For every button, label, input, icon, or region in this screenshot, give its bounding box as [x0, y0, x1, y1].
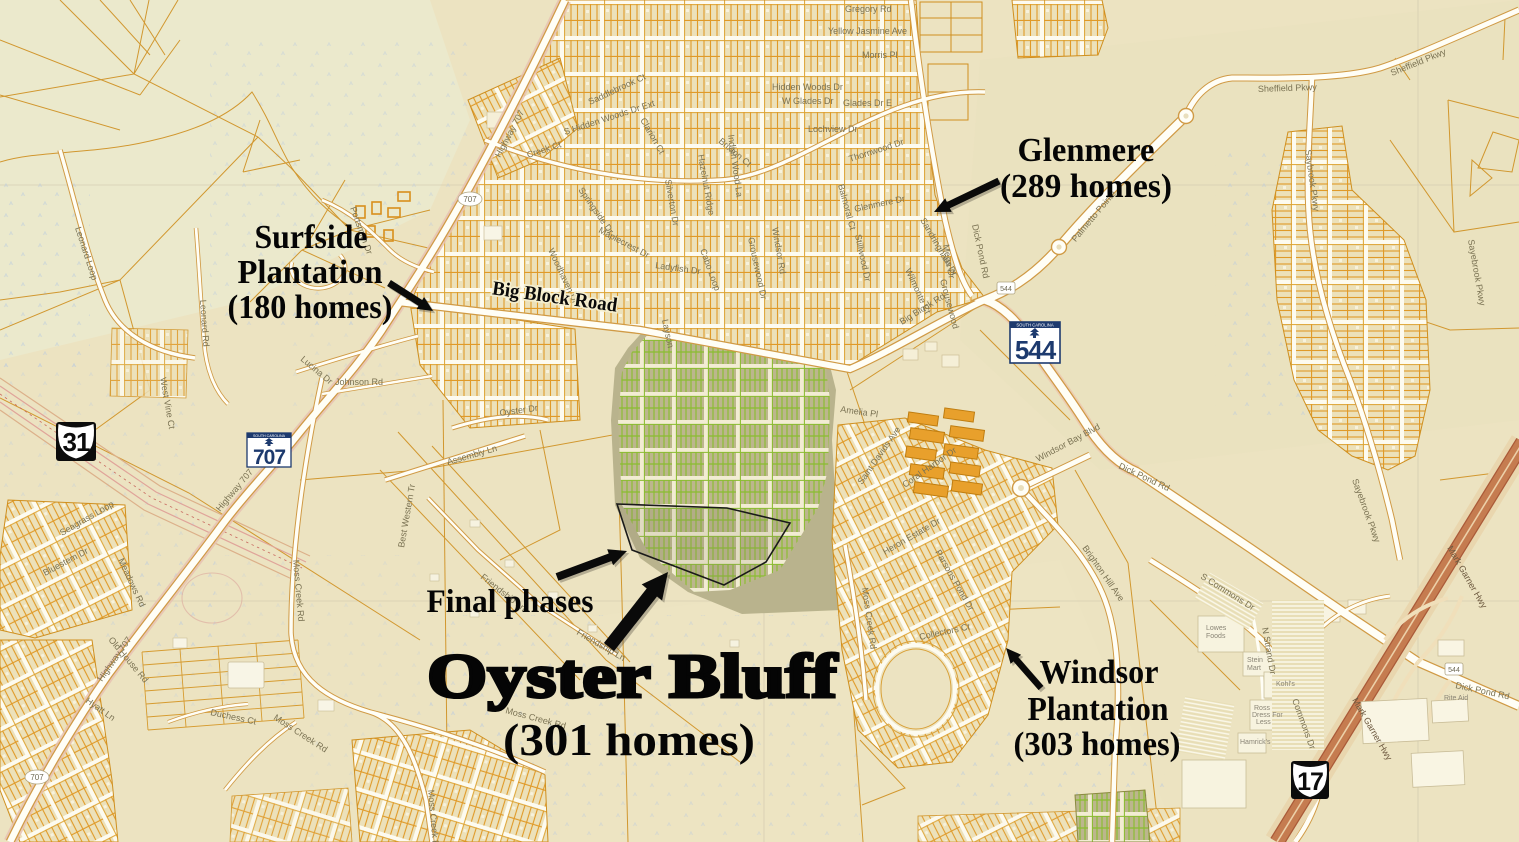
- svg-text:Dress For: Dress For: [1252, 712, 1283, 719]
- svg-text:(301 homes): (301 homes): [503, 714, 755, 765]
- svg-text:Morris Pl: Morris Pl: [862, 50, 898, 60]
- svg-text:Plantation: Plantation: [1028, 691, 1169, 728]
- svg-text:Mart: Mart: [1247, 665, 1261, 672]
- svg-text:544: 544: [1448, 667, 1460, 674]
- svg-text:Foods: Foods: [1206, 633, 1226, 640]
- svg-text:SOUTH CAROLINA: SOUTH CAROLINA: [253, 434, 286, 438]
- svg-text:Final phases: Final phases: [427, 584, 594, 620]
- svg-text:Surfside: Surfside: [255, 219, 368, 256]
- svg-text:W Glades Dr: W Glades Dr: [782, 96, 834, 106]
- svg-text:Glades Dr E: Glades Dr E: [843, 98, 892, 108]
- svg-text:707: 707: [253, 446, 285, 469]
- svg-text:Stein: Stein: [1247, 657, 1263, 664]
- svg-text:Less: Less: [1256, 719, 1271, 726]
- svg-text:31: 31: [63, 427, 90, 457]
- svg-text:Lowes: Lowes: [1206, 625, 1227, 632]
- svg-text:SOUTH CAROLINA: SOUTH CAROLINA: [1016, 323, 1053, 328]
- svg-text:Glenmere: Glenmere: [1018, 132, 1155, 169]
- svg-text:707: 707: [463, 195, 477, 204]
- svg-text:Oyster Bluff: Oyster Bluff: [427, 643, 839, 711]
- svg-text:Hamrick's: Hamrick's: [1240, 739, 1271, 746]
- svg-text:Johnson Rd: Johnson Rd: [335, 377, 383, 387]
- svg-text:Yellow Jasmine Ave: Yellow Jasmine Ave: [828, 26, 907, 36]
- svg-text:(289 homes): (289 homes): [1000, 168, 1172, 205]
- svg-text:Rite Aid: Rite Aid: [1444, 695, 1468, 702]
- svg-text:Hidden Woods Dr: Hidden Woods Dr: [772, 82, 843, 92]
- svg-text:Lochview Dr: Lochview Dr: [808, 124, 858, 134]
- svg-text:707: 707: [30, 773, 44, 782]
- svg-text:(180 homes): (180 homes): [228, 289, 393, 326]
- svg-text:Sheffield Pkwy: Sheffield Pkwy: [1258, 82, 1318, 94]
- svg-text:17: 17: [1297, 768, 1323, 796]
- svg-text:Ross: Ross: [1254, 705, 1270, 712]
- svg-text:Plantation: Plantation: [238, 254, 383, 291]
- svg-text:(303 homes): (303 homes): [1014, 726, 1181, 763]
- svg-text:544: 544: [1015, 335, 1057, 365]
- svg-text:544: 544: [1000, 286, 1012, 293]
- svg-text:Kohl's: Kohl's: [1276, 681, 1295, 688]
- svg-text:Gregory Rd: Gregory Rd: [845, 4, 892, 14]
- svg-text:Windsor: Windsor: [1040, 654, 1159, 691]
